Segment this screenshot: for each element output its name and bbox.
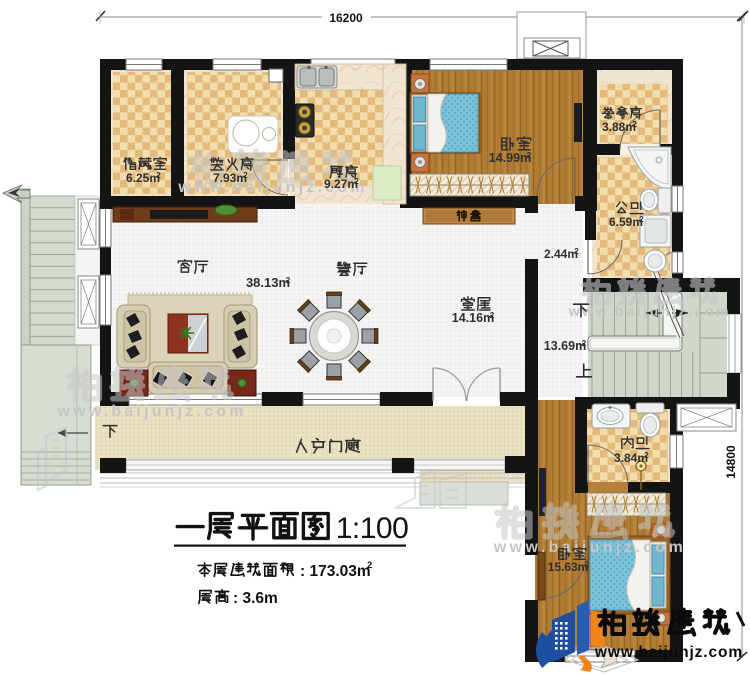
svg-text:www.baijunjz.com: www.baijunjz.com — [594, 644, 743, 661]
svg-text:15.63m: 15.63m — [548, 560, 589, 574]
svg-text:2: 2 — [490, 311, 495, 320]
svg-text:www.baijunjz.com: www.baijunjz.com — [568, 303, 731, 319]
svg-text:14800: 14800 — [724, 445, 738, 479]
svg-text:7.93m: 7.93m — [213, 171, 247, 185]
svg-text:2.44m: 2.44m — [544, 247, 578, 261]
svg-text:: 3.6m: : 3.6m — [233, 590, 278, 607]
svg-text:2: 2 — [527, 151, 532, 160]
svg-text:3.88m: 3.88m — [602, 120, 636, 134]
svg-text:2: 2 — [367, 560, 372, 571]
svg-text:6.25m: 6.25m — [126, 171, 160, 185]
svg-text:2: 2 — [644, 451, 649, 460]
svg-text:2: 2 — [582, 339, 587, 348]
svg-text:14.99m: 14.99m — [489, 151, 531, 165]
svg-text:14.16m: 14.16m — [452, 311, 494, 325]
svg-text:www.baijunjz.com: www.baijunjz.com — [56, 403, 246, 420]
svg-text:2: 2 — [243, 171, 248, 180]
svg-text:13.69m: 13.69m — [544, 339, 586, 353]
svg-text:2: 2 — [574, 247, 579, 256]
svg-text:www.baijunjz.com: www.baijunjz.com — [493, 539, 687, 556]
svg-text:38.13m: 38.13m — [246, 275, 290, 290]
svg-text:16200: 16200 — [329, 11, 363, 25]
svg-text:: 173.03m: : 173.03m — [300, 563, 371, 580]
svg-text:2: 2 — [156, 171, 161, 180]
svg-text:1:100: 1:100 — [336, 512, 409, 545]
svg-text:2: 2 — [354, 177, 359, 186]
svg-text:2: 2 — [632, 120, 637, 129]
svg-text:2: 2 — [585, 560, 590, 569]
svg-text:2: 2 — [639, 215, 644, 224]
svg-text:2: 2 — [286, 276, 291, 285]
svg-text:3.84m: 3.84m — [614, 451, 648, 465]
svg-text:6.59m: 6.59m — [609, 215, 643, 229]
svg-text:9.27m: 9.27m — [324, 177, 358, 191]
